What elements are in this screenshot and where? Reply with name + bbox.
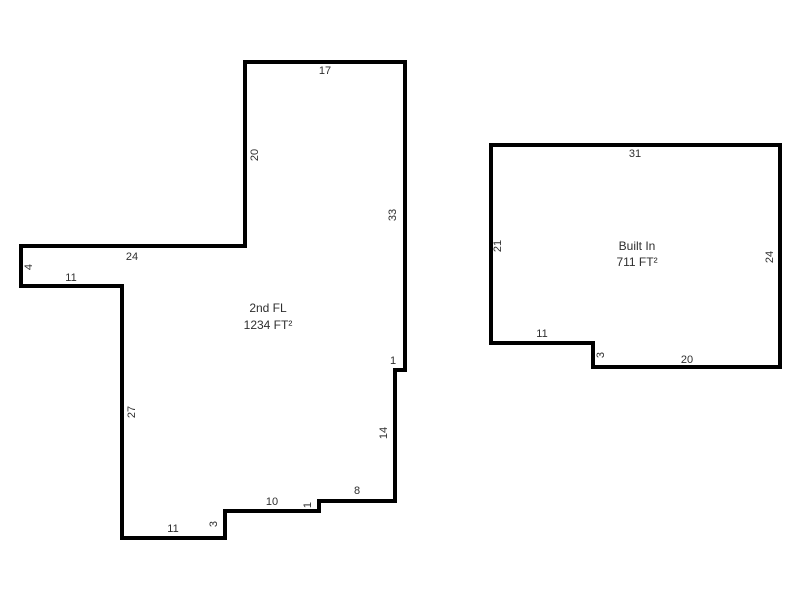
edge-dimension-label: 11: [536, 328, 547, 340]
floor-outline: [21, 62, 405, 538]
floor-name-label: Built In: [619, 239, 656, 253]
floor-group: Built In711 FT²31242031121: [491, 145, 780, 367]
edge-dimension-label: 24: [126, 251, 138, 263]
floor-group: 2nd FL1234 FT²17331148110311271142420: [21, 62, 405, 538]
edge-dimension-label: 11: [65, 272, 76, 284]
edge-dimension-label: 1: [390, 355, 396, 367]
floor-area-label: 711 FT²: [616, 255, 657, 269]
edge-dimension-label: 31: [629, 148, 641, 160]
edge-dimension-label: 20: [681, 354, 693, 366]
edge-dimension-label: 11: [167, 523, 178, 535]
edge-dimension-label: 1: [302, 502, 314, 508]
edge-dimension-label: 24: [764, 251, 776, 263]
edge-dimension-label: 14: [378, 427, 390, 439]
edge-dimension-label: 17: [319, 65, 331, 77]
edge-dimension-label: 3: [208, 521, 220, 527]
edge-dimension-label: 10: [266, 496, 278, 508]
edge-dimension-label: 20: [249, 149, 261, 161]
edge-dimension-label: 8: [354, 485, 360, 497]
floor-area-label: 1234 FT²: [244, 318, 293, 332]
edge-dimension-label: 27: [126, 406, 138, 418]
edge-dimension-label: 4: [23, 264, 35, 270]
floorplan-canvas: 2nd FL1234 FT²17331148110311271142420Bui…: [0, 0, 800, 600]
floorplan-page: 2nd FL1234 FT²17331148110311271142420Bui…: [0, 0, 800, 600]
edge-dimension-label: 33: [387, 209, 399, 221]
edge-dimension-label: 3: [595, 352, 607, 358]
floor-name-label: 2nd FL: [249, 301, 287, 315]
edge-dimension-label: 21: [492, 240, 504, 252]
